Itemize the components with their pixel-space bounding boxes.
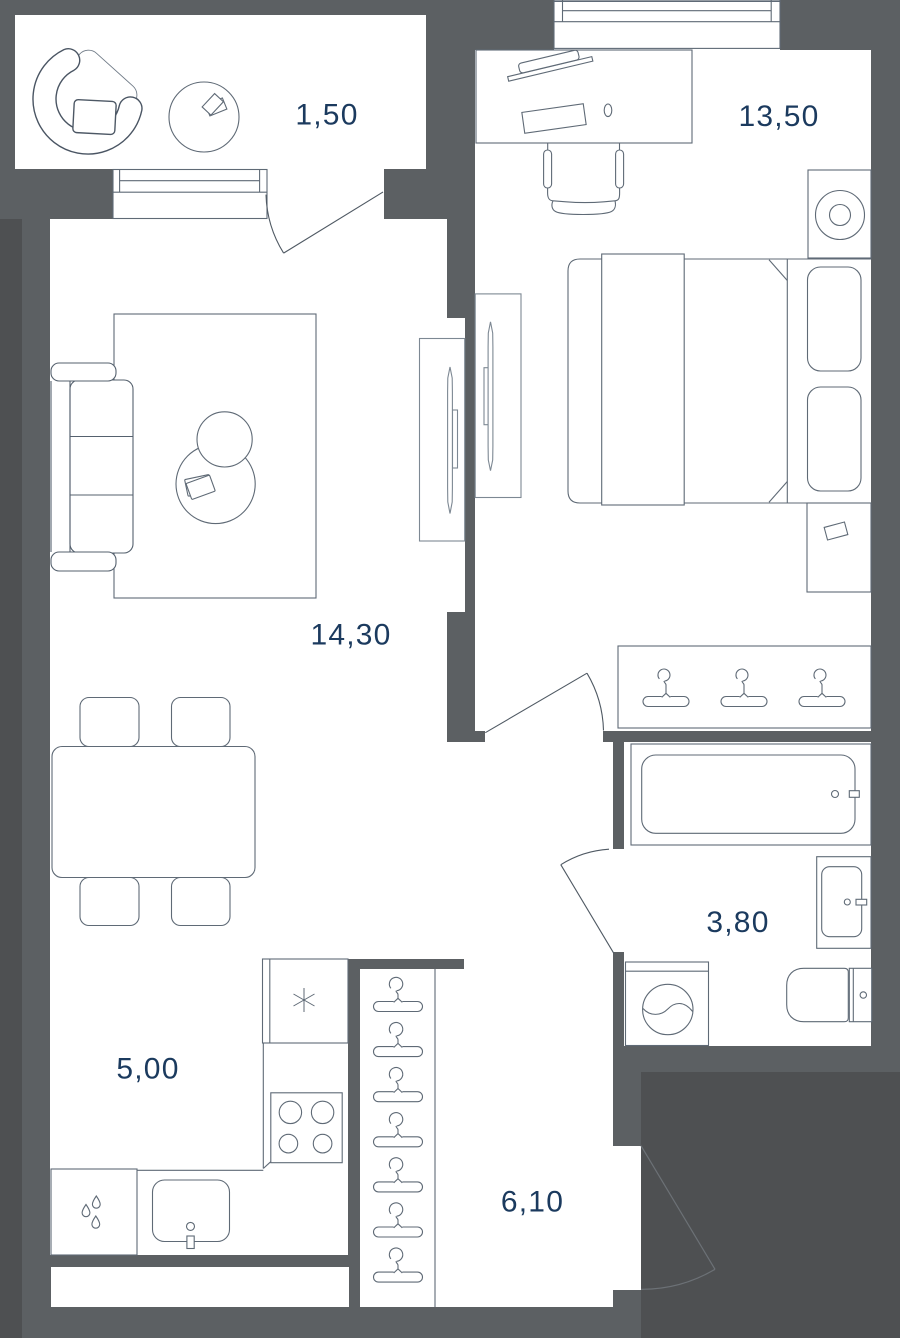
svg-text:5,00: 5,00 [116, 1053, 179, 1086]
svg-text:6,10: 6,10 [501, 1186, 564, 1219]
svg-text:13,50: 13,50 [738, 100, 819, 133]
svg-text:1,50: 1,50 [295, 99, 358, 132]
svg-text:3,80: 3,80 [706, 906, 769, 939]
svg-text:14,30: 14,30 [310, 619, 391, 652]
